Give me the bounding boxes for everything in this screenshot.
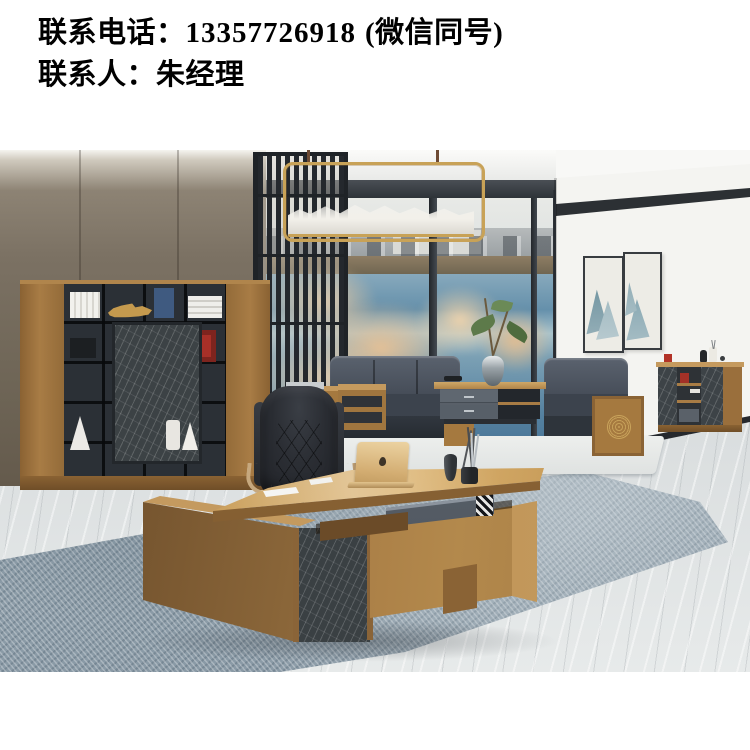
phone-label: 联系电话： bbox=[38, 17, 186, 49]
cabinet-side-panel bbox=[723, 367, 742, 425]
showroom-photo bbox=[0, 150, 750, 672]
contact-phone-line: 联系电话：13357726918(微信同号) bbox=[38, 12, 503, 54]
person-label: 联系人： bbox=[38, 59, 156, 91]
dark-ball-decor bbox=[720, 356, 725, 361]
shelf-board bbox=[498, 402, 540, 405]
apple-logo-icon bbox=[379, 457, 387, 466]
black-tray bbox=[444, 376, 462, 381]
phone-number: 13357726918 bbox=[186, 17, 357, 49]
black-vase-decor bbox=[700, 350, 707, 362]
books-white bbox=[70, 292, 100, 318]
cabinet-base bbox=[658, 425, 742, 432]
blue-book bbox=[154, 288, 174, 318]
table-plinth bbox=[444, 419, 536, 424]
laptop-base bbox=[347, 482, 415, 488]
white-book bbox=[690, 389, 700, 393]
cabinet-marble-door bbox=[658, 367, 677, 425]
table-body bbox=[440, 389, 540, 419]
contact-person-line: 联系人：朱经理 bbox=[38, 54, 503, 96]
contact-info: 联系电话：13357726918(微信同号) 联系人：朱经理 bbox=[38, 12, 503, 96]
books-stack bbox=[188, 296, 222, 318]
cabinet-body bbox=[658, 367, 742, 425]
cabinet-shelf bbox=[677, 400, 701, 403]
table-open-shelf bbox=[498, 389, 540, 419]
diffuser-jar bbox=[461, 467, 478, 484]
wall-art-right bbox=[623, 252, 662, 350]
laptop-screen bbox=[355, 442, 410, 484]
drawer-handle bbox=[464, 396, 474, 398]
bookcase-base bbox=[20, 476, 270, 490]
red-box-decor bbox=[664, 354, 672, 362]
red-books bbox=[680, 373, 689, 383]
mountain-art bbox=[585, 258, 622, 351]
sofa-cushion-seam bbox=[416, 360, 418, 394]
cabinet-shelf bbox=[677, 383, 701, 386]
table-drawer bbox=[440, 390, 498, 403]
partition-rail bbox=[258, 322, 344, 325]
gold-medallion bbox=[607, 415, 631, 439]
bookcase-left-door bbox=[20, 284, 64, 476]
phone-note: (微信同号) bbox=[365, 17, 503, 49]
sofa-back bbox=[544, 358, 628, 398]
side-cabinet bbox=[656, 356, 746, 434]
partition-rail bbox=[258, 254, 344, 257]
coffee-table bbox=[434, 382, 546, 432]
pattern-accent bbox=[476, 494, 493, 516]
cabinet-drawer bbox=[679, 409, 699, 422]
sofa-wood-panel bbox=[592, 396, 644, 456]
chair-quilting bbox=[276, 420, 322, 484]
white-cylinder bbox=[166, 420, 180, 450]
single-sofa bbox=[544, 358, 644, 456]
black-decor bbox=[70, 338, 96, 358]
person-name: 朱经理 bbox=[156, 59, 245, 91]
wall-art-left bbox=[583, 256, 624, 353]
pendant-lamp-rim bbox=[288, 234, 474, 237]
cabinet-marble-door bbox=[701, 367, 723, 425]
table-drawer bbox=[440, 405, 498, 418]
bookcase bbox=[20, 280, 270, 490]
diffuser-bottle bbox=[709, 347, 717, 362]
drawer-handle bbox=[464, 410, 474, 412]
